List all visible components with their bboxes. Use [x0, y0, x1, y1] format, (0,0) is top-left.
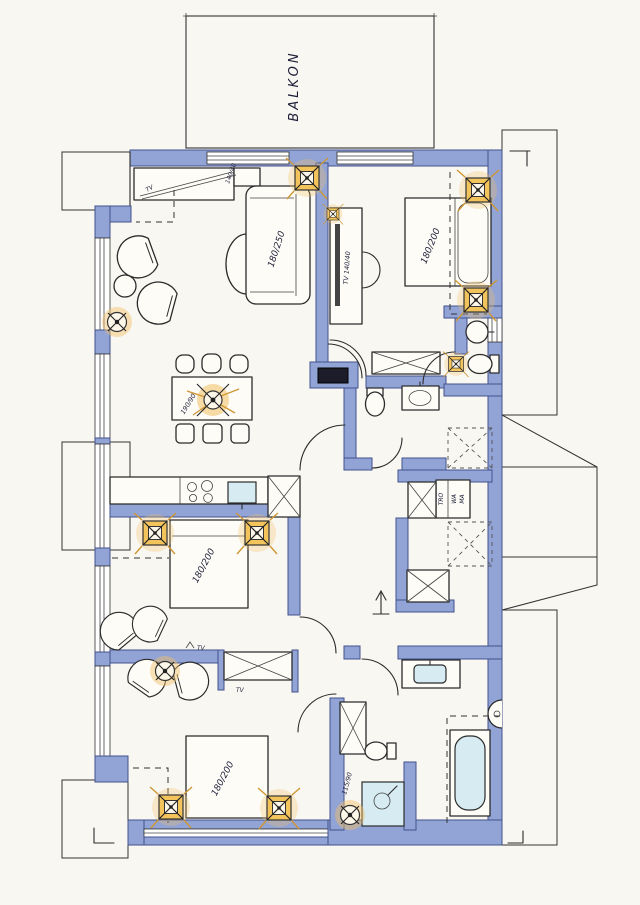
floor-plan-drawing: BALKON [0, 0, 640, 905]
dining-stool [230, 355, 248, 373]
window-left-2 [95, 354, 110, 438]
toilet-bowl [366, 392, 385, 416]
wall-bottom-band-inner [144, 837, 328, 845]
spotlight-square [286, 158, 328, 199]
spotlight-square [455, 280, 497, 321]
wall-wc1-left [455, 318, 467, 354]
stove-flue [318, 368, 348, 383]
window-top-1 [207, 152, 289, 164]
spotlight-square-small [323, 204, 344, 225]
kitchen-sink [228, 482, 256, 503]
wall-utility-left [396, 518, 408, 612]
wall-left-seg-3 [95, 438, 110, 444]
spotlight-square-small [443, 352, 469, 377]
dryer-label: TRO [438, 492, 445, 505]
shower [362, 782, 404, 826]
wall-wc1-bottom [444, 384, 502, 396]
sideboard [134, 168, 234, 200]
bed [405, 198, 491, 286]
sideboard-extension [234, 168, 260, 186]
tv-cabinet-label: TV [236, 687, 245, 694]
wall-left-connector-bottom [95, 756, 128, 782]
vanity-basin [414, 665, 446, 683]
side-table [114, 275, 136, 297]
balcony-label: BALKON [287, 50, 302, 121]
wall-hall-bath-top-a [344, 646, 360, 659]
window-left-5 [95, 666, 110, 758]
bedroom-middle-left: 180/200 [170, 520, 248, 608]
wall-left-seg-4 [95, 548, 110, 566]
spotlight-square [236, 513, 278, 554]
washbasin-cabinet [402, 386, 439, 410]
dining-stool [202, 354, 221, 373]
wall-hall-bath-top-b [398, 646, 502, 659]
tv-screen [335, 224, 340, 306]
toilet-bowl [365, 742, 387, 760]
wall-bedroom2-right [288, 517, 300, 615]
toilet [468, 355, 499, 374]
washer-label-2: MA [459, 494, 466, 503]
dining-stool [176, 355, 194, 373]
wall-bath2-right [404, 762, 416, 830]
spotlight-square [134, 513, 176, 554]
wall-left-seg-5 [95, 652, 110, 666]
bathtub [455, 736, 485, 810]
toilet [365, 742, 396, 760]
spotlight-square [457, 170, 499, 211]
spotlight-round [102, 307, 132, 337]
dining-stool [231, 424, 249, 443]
wall-bottom-stub-left [128, 820, 144, 845]
washer-label-1: WA [451, 494, 458, 504]
wall-stub-bedroom3-door [292, 650, 298, 692]
spotlight-round [335, 800, 365, 830]
spotlight-square [150, 787, 192, 828]
wall-bath1-bottom-b [402, 458, 446, 470]
toilet-tank [387, 743, 396, 759]
window-left-3 [95, 444, 110, 548]
wall-left-seg-1 [95, 206, 110, 238]
window-top-2 [337, 152, 413, 164]
round-sink [466, 321, 488, 343]
spotlight-round [150, 656, 180, 686]
floor-plan-page: BALKON [0, 0, 640, 905]
tv-outlet-label: TV [197, 645, 206, 652]
dining-stool [176, 424, 194, 443]
wall-bath1-bottom-a [344, 458, 372, 470]
toilet-bowl [468, 355, 492, 374]
toilet [366, 388, 385, 416]
wall-jog-tv-niche [218, 650, 224, 690]
spotlight-square [258, 788, 300, 829]
dining-stool [203, 424, 222, 443]
